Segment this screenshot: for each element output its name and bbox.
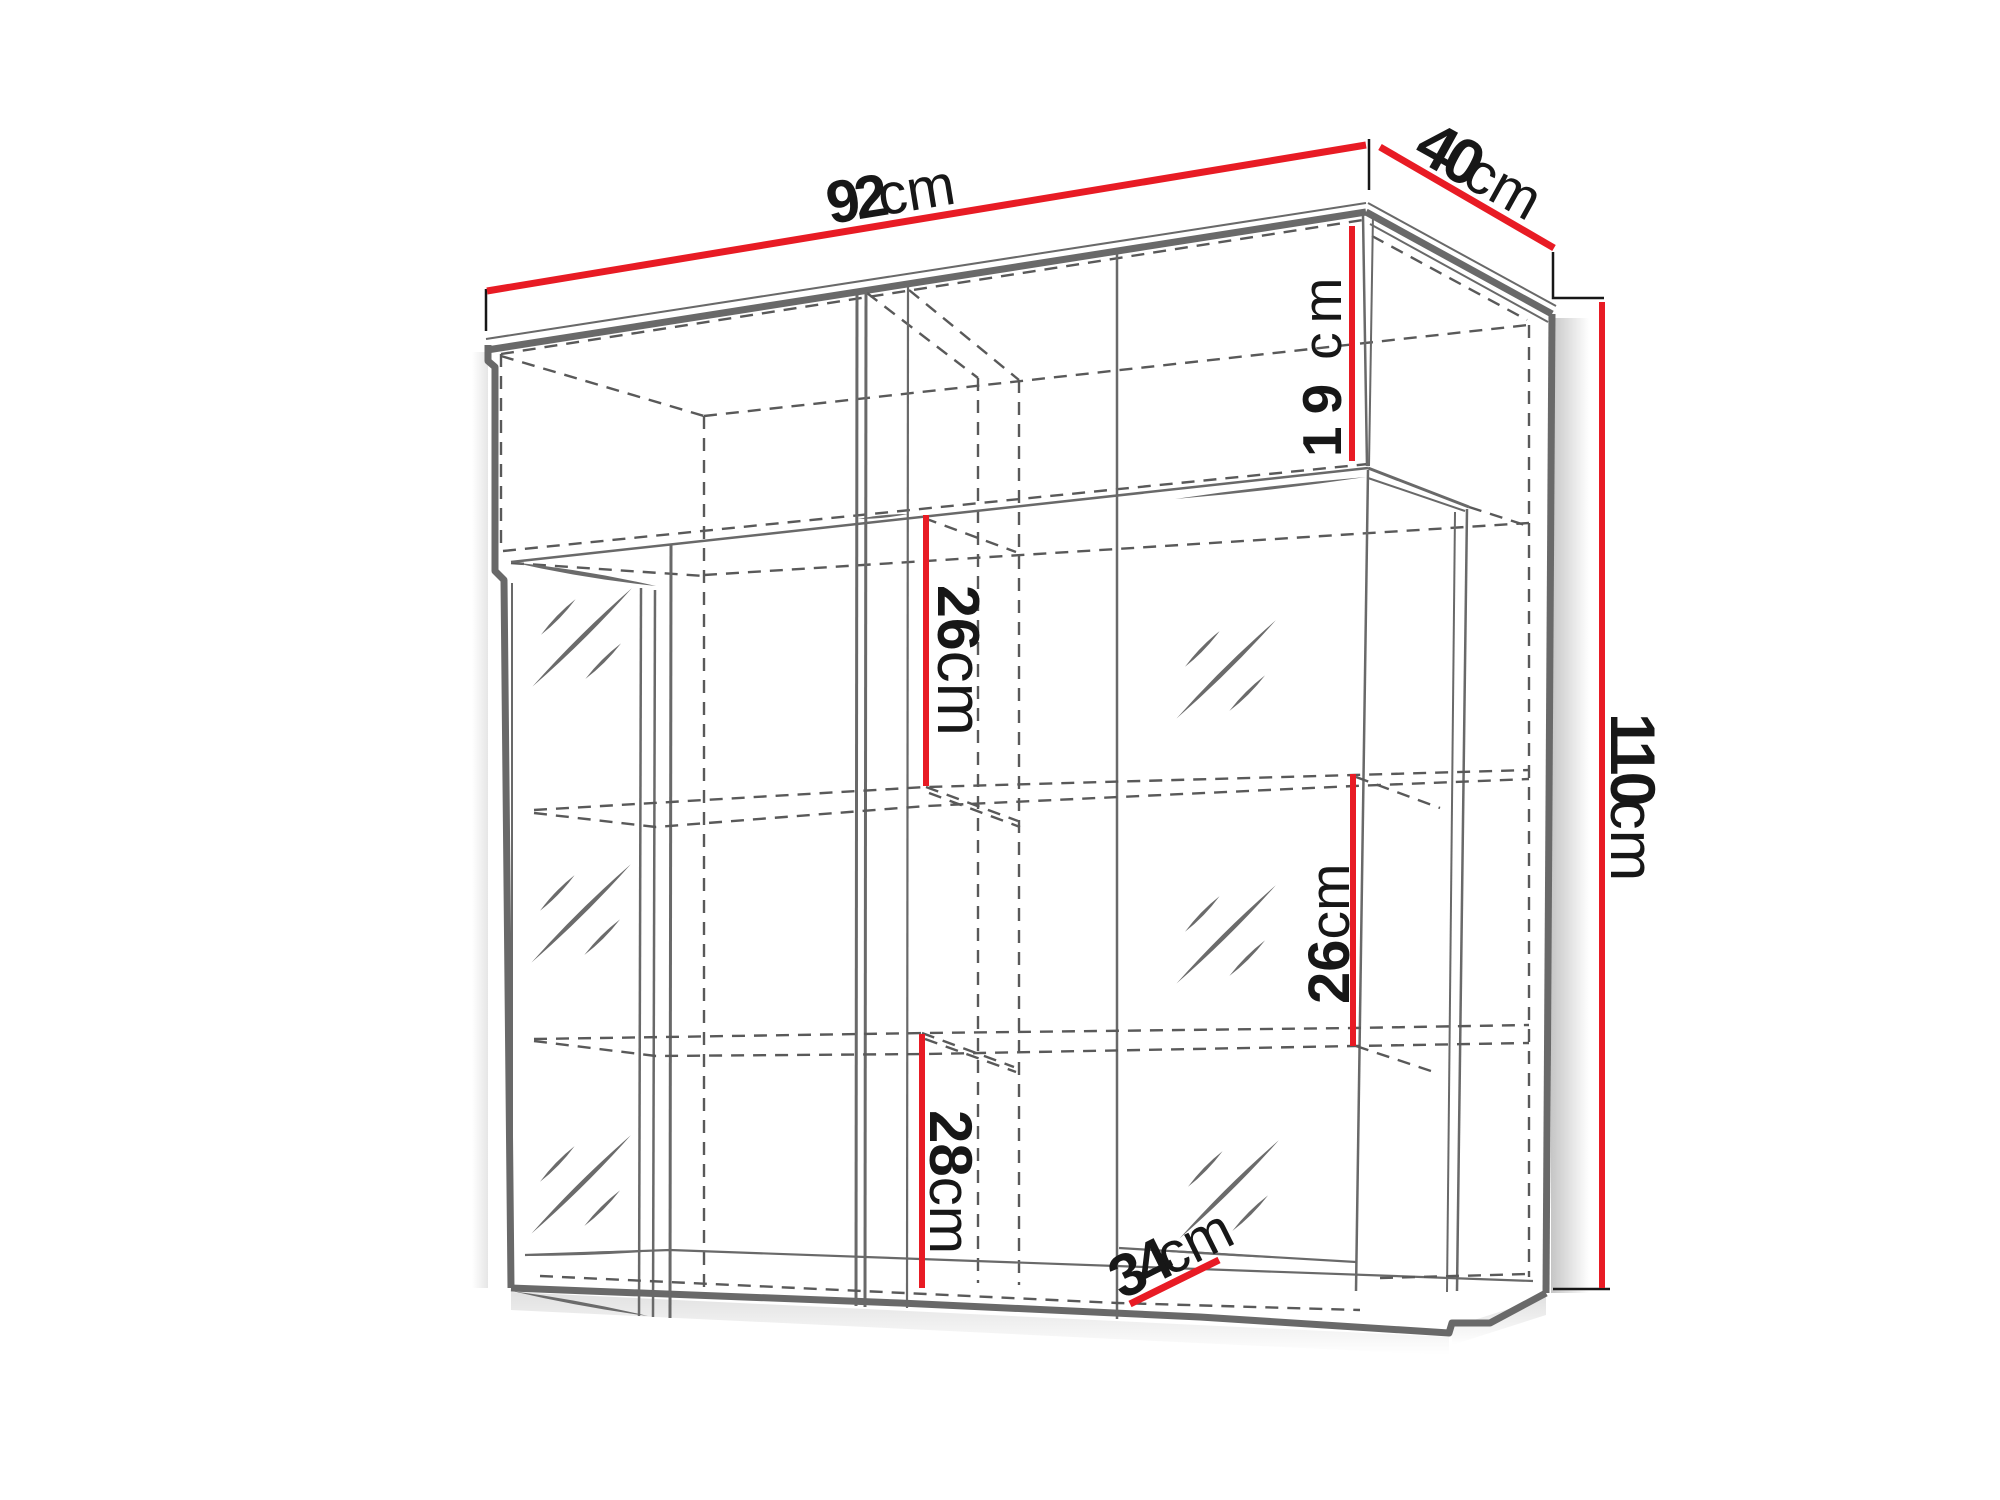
svg-text:26cm: 26cm bbox=[1297, 864, 1362, 1005]
svg-text:28cm: 28cm bbox=[917, 1110, 984, 1254]
svg-text:26cm: 26cm bbox=[924, 585, 996, 736]
svg-text:110cm: 110cm bbox=[1597, 713, 1667, 881]
